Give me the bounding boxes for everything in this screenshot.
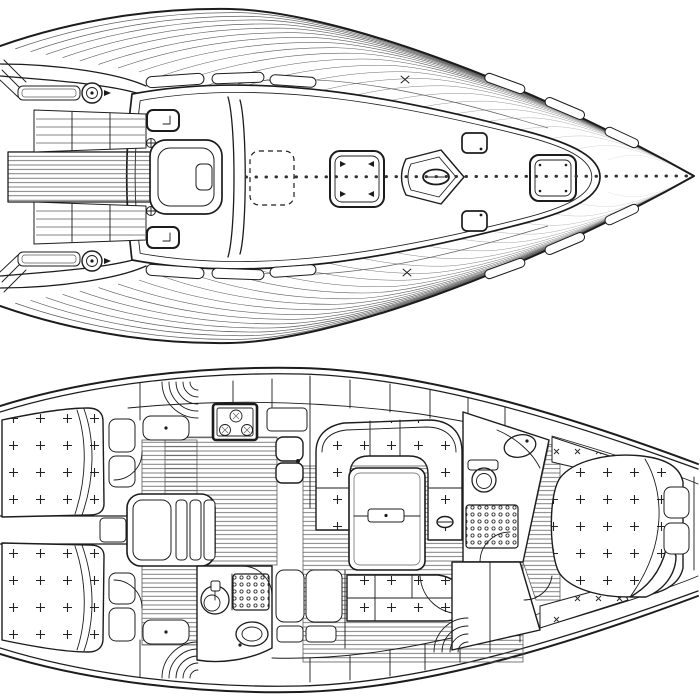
port-coaming-slot (18, 86, 80, 100)
interior-plan (0, 368, 698, 692)
helm-recess (150, 140, 222, 214)
port-aft-cabin-pillows (109, 419, 135, 487)
port-winch (82, 83, 111, 103)
yacht-plan-drawing (0, 0, 700, 700)
starboard-cockpit-locker-hatch (147, 227, 179, 248)
v-berth (551, 455, 683, 597)
aft-head (197, 566, 272, 662)
vent-hatch-starboard (462, 211, 487, 231)
yacht-plans-sheet (0, 0, 700, 700)
deck-plan (0, 9, 694, 343)
fore-hatch (530, 155, 576, 201)
skylight-hatch (330, 151, 384, 207)
stove-with-burners (213, 404, 257, 440)
mast-post (437, 517, 453, 528)
starboard-hanging-locker (162, 642, 198, 678)
vent-hatch-port (462, 133, 487, 153)
wet-lockers (276, 570, 345, 648)
double-sink (276, 437, 303, 483)
starboard-settee (347, 575, 461, 621)
cockpit-sole (8, 150, 150, 204)
saloon-table (349, 468, 425, 570)
starboard-bench-slats (34, 202, 146, 244)
port-bench-slats (34, 110, 146, 152)
aft-head-shower-grate (233, 574, 269, 610)
companionway-steps (127, 494, 215, 566)
starboard-winch (82, 251, 111, 271)
port-hanging-locker (162, 382, 198, 418)
engine-compartment (0, 516, 127, 544)
icebox-worktop (267, 408, 307, 431)
forward-head-shower-grate (466, 505, 518, 548)
starboard-aft-cabin-pillows (109, 573, 135, 641)
starboard-coaming-slot (18, 252, 80, 266)
port-cockpit-locker-hatch (147, 110, 179, 131)
